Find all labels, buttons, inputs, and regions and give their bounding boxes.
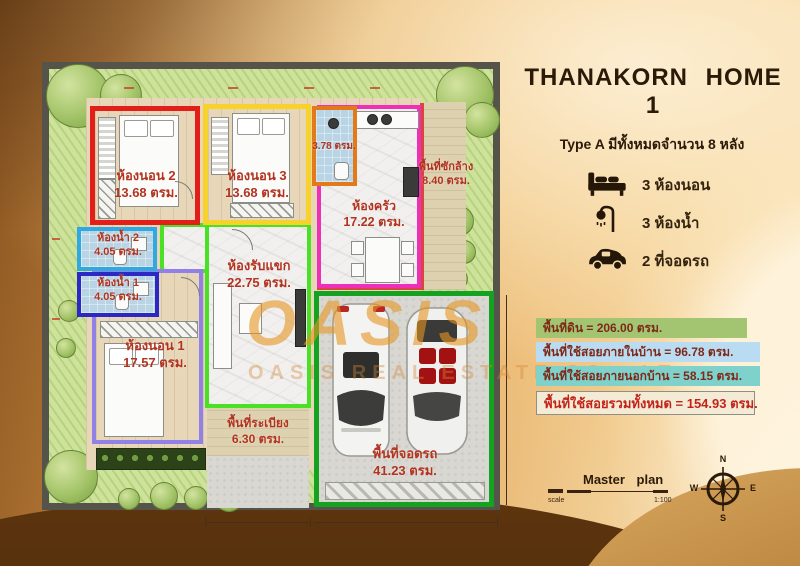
dimension-tick	[497, 517, 498, 527]
dimension-line	[205, 522, 311, 523]
label-terrace: พื้นที่ระเบียง6.30 ตรม.	[207, 416, 309, 447]
master-plan-title: Master plan	[583, 472, 683, 487]
poster-canvas: ห้องนอน 213.68 ตรม. ห้องนอน 313.68 ตรม. …	[0, 0, 800, 566]
feature-label: 3 ห้องนอน	[642, 173, 710, 197]
feature-bathrooms: 3 ห้องน้ำ	[580, 204, 780, 240]
label-kitchen: ห้องครัว17.22 ตรม.	[332, 198, 416, 231]
closet	[230, 203, 294, 218]
bush	[184, 486, 208, 510]
sofa	[213, 283, 232, 369]
feature-label: 2 ที่จอดรถ	[642, 249, 709, 273]
area-bar-interior: พื้นที่ใช้สอยภายในบ้าน = 96.78 ตรม.	[536, 342, 760, 362]
dimension-mark	[304, 87, 314, 89]
room-bedroom-2	[90, 106, 200, 225]
compass-north: N	[717, 454, 729, 464]
label-laundry: พื้นที่ซักล้าง8.40 ตรม.	[410, 160, 482, 189]
watermark-brand: OASIS	[246, 286, 490, 360]
dimension-tick	[205, 517, 206, 527]
room-laundry-area	[424, 102, 466, 290]
stove-burner	[367, 114, 378, 125]
tree	[464, 102, 500, 138]
drain	[328, 118, 339, 129]
pillow	[124, 120, 148, 137]
car-icon	[586, 244, 628, 274]
area-bar-land: พื้นที่ดิน = 206.00 ตรม.	[536, 318, 747, 338]
scale-bar	[548, 489, 668, 494]
dimension-mark	[124, 87, 134, 89]
dimension-line	[314, 522, 497, 523]
feature-label: 3 ห้องน้ำ	[642, 211, 699, 235]
scale-caption: scale	[548, 497, 564, 504]
pillow	[150, 120, 174, 137]
walkway	[207, 456, 309, 508]
dining-table	[365, 237, 400, 283]
chair	[351, 241, 364, 255]
compass-south: S	[717, 513, 729, 523]
bed-icon	[586, 168, 628, 198]
chair	[401, 263, 414, 277]
label-bedroom-1: ห้องนอน 117.57 ตรม.	[104, 338, 206, 372]
label-bath-1: ห้องน้ำ 14.05 ตรม.	[82, 276, 154, 305]
feature-parking: 2 ที่จอดรถ	[580, 242, 780, 278]
shower-icon	[594, 204, 620, 234]
page-title: THANAKORN HOME 1	[512, 64, 794, 120]
pillow	[237, 118, 260, 135]
dimension-mark	[52, 238, 60, 240]
wardrobe	[100, 321, 198, 338]
room-living-extension	[160, 223, 210, 273]
label-bedroom-3: ห้องนอน 313.68 ตรม.	[206, 168, 308, 202]
chair	[351, 263, 364, 277]
label-bedroom-2: ห้องนอน 213.68 ตรม.	[95, 168, 197, 202]
compass-east: E	[747, 483, 759, 493]
dimension-tick	[310, 517, 311, 527]
bush	[56, 338, 76, 358]
stove-burner	[381, 114, 392, 125]
feature-bedrooms: 3 ห้องนอน	[580, 166, 780, 202]
room-bedroom-3	[203, 104, 311, 225]
dimension-mark	[228, 87, 238, 89]
dimension-mark	[370, 87, 380, 89]
bush	[118, 488, 140, 510]
label-bath-3: 3.78 ตรม.	[306, 140, 362, 153]
scale-ratio: 1:100	[654, 497, 672, 504]
bush	[150, 482, 178, 510]
dimension-mark	[52, 318, 60, 320]
area-bar-exterior: พื้นที่ใช้สอยภายนอกบ้าน = 58.15 ตรม.	[536, 366, 760, 386]
driveway-hatch	[325, 482, 485, 500]
wardrobe	[211, 117, 229, 175]
door-arc	[162, 277, 200, 315]
dimension-line-vertical	[506, 295, 507, 505]
label-bath-2: ห้องน้ำ 24.05 ตรม.	[82, 231, 154, 260]
chair	[401, 241, 414, 255]
subtitle: Type A มีทั้งหมดจำนวน 8 หลัง	[516, 134, 788, 156]
label-parking: พื้นที่จอดรถ41.23 ตรม.	[344, 446, 466, 480]
area-bar-total: พื้นที่ใช้สอยรวมทั้งหมด = 154.93 ตรม.	[536, 391, 755, 415]
toilet	[334, 162, 349, 180]
planter	[96, 448, 206, 470]
compass-icon	[701, 467, 745, 511]
pillow	[262, 118, 285, 135]
compass-west: W	[688, 483, 700, 493]
